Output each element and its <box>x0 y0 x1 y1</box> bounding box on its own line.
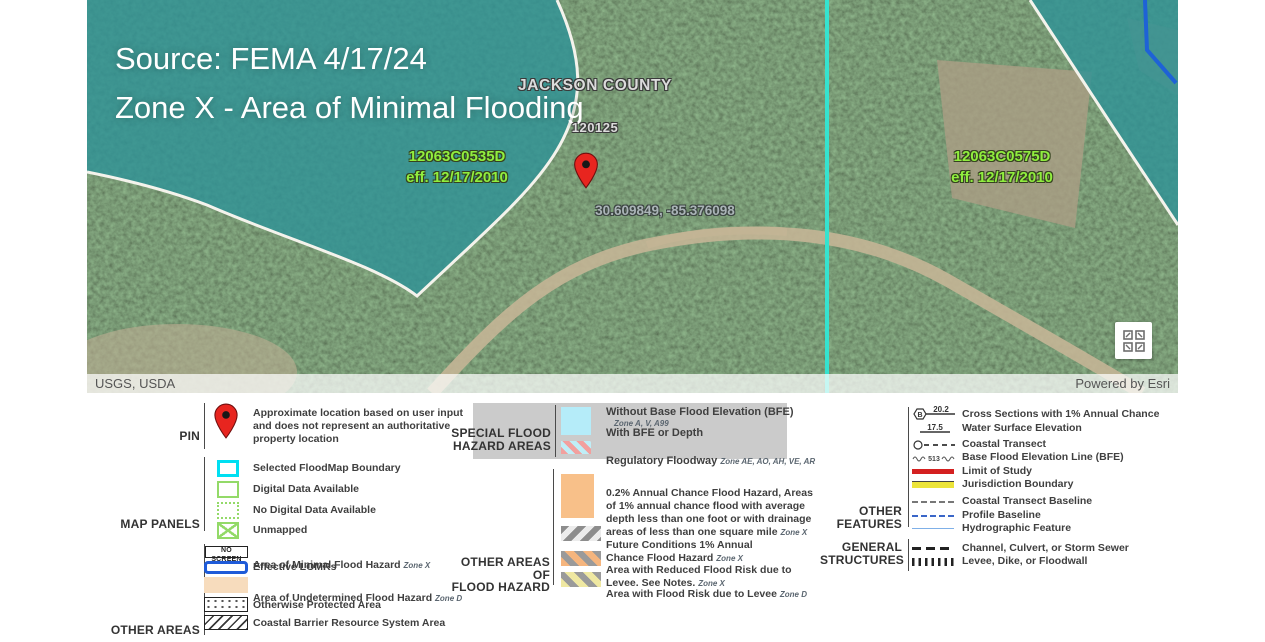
svg-text:513: 513 <box>928 456 940 463</box>
coastal-transect-symbol <box>912 439 956 451</box>
swatch-coastal-barrier <box>204 615 248 630</box>
swatch-undetermined <box>204 577 248 593</box>
cross-section-symbol: B 20.2 <box>912 406 956 422</box>
legend-row: B 20.2 Cross Sections with 1% Annual Cha… <box>912 406 1159 422</box>
jurisdiction-boundary-symbol <box>912 481 956 488</box>
water-surface-elevation-symbol: 17.5 <box>912 422 956 435</box>
legend-section-other-features: OTHER FEATURES <box>820 505 902 530</box>
swatch-no-digital-data <box>217 502 239 519</box>
legend-label: With BFE or Depth <box>606 427 703 440</box>
swatch-future-conditions <box>561 526 601 541</box>
attribution-sources: USGS, USDA <box>95 376 175 391</box>
legend-row: Channel, Culvert, or Storm Sewer <box>912 542 1129 555</box>
swatch-otherwise-protected <box>204 597 248 612</box>
swatch-digital-data <box>217 481 239 498</box>
firm-panel-label-left: 12063C0535D eff. 12/17/2010 <box>362 146 552 188</box>
legend-label: No Digital Data Available <box>253 504 376 517</box>
divider <box>204 457 205 531</box>
pin-coordinates-label: 30.609849, -85.376098 <box>565 203 765 218</box>
legend-section-general-structures: GENERAL STRUCTURES <box>820 541 902 566</box>
legend-row: Jurisdiction Boundary <box>912 478 1073 491</box>
legend-label: Otherwise Protected Area <box>253 599 381 612</box>
legend-row: Hydrographic Feature <box>912 522 1071 535</box>
swatch-flood-risk-levee <box>561 572 601 587</box>
legend-row: Levee, Dike, or Floodwall <box>912 555 1087 568</box>
svg-text:17.5: 17.5 <box>927 423 943 432</box>
legend-label: Regulatory Floodway Zone AE, AO, AH, VE,… <box>606 442 815 468</box>
svg-text:20.2: 20.2 <box>933 406 949 414</box>
legend-row: 17.5 Water Surface Elevation <box>912 422 1082 435</box>
divider <box>204 403 205 449</box>
legend-row: Limit of Study <box>912 465 1032 478</box>
swatch-selected-floodmap-boundary <box>217 460 239 477</box>
flood-map-legend: PIN Approximate location based on user i… <box>0 393 1265 642</box>
legend-label: Selected FloodMap Boundary <box>253 462 401 475</box>
legend-section-sfha: SPECIAL FLOOD HAZARD AREAS <box>440 427 551 452</box>
attribution-esri: Powered by Esri <box>1075 376 1170 391</box>
legend-label: Area with Flood Risk due to Levee Zone D <box>606 575 807 601</box>
hydrographic-feature-symbol <box>912 528 956 530</box>
county-code-label: 120125 <box>485 120 705 135</box>
flood-map-canvas[interactable]: Source: FEMA 4/17/24 Zone X - Area of Mi… <box>87 0 1178 393</box>
coastal-transect-baseline-symbol <box>912 501 956 503</box>
legend-row: Profile Baseline <box>912 509 1041 522</box>
legend-section-pin: PIN <box>100 430 200 443</box>
swatch-sfha-cyan <box>561 407 591 435</box>
legend-label: Coastal Barrier Resource System Area <box>253 617 445 630</box>
legend-label: Unmapped <box>253 524 307 537</box>
channel-culvert-symbol <box>912 547 956 551</box>
svg-text:B: B <box>917 412 922 419</box>
profile-baseline-symbol <box>912 515 956 517</box>
swatch-no-screen: NO SCREEN <box>205 546 248 558</box>
legend-row: 513 Base Flood Elevation Line (BFE) <box>912 451 1124 464</box>
legend-row: Coastal Transect <box>912 438 1046 451</box>
swatch-unmapped <box>217 522 239 539</box>
swatch-02pct-annual-chance <box>561 474 594 518</box>
legend-label: Without Base Flood Elevation (BFE) <box>606 406 794 419</box>
legend-row: Coastal Transect Baseline <box>912 495 1092 508</box>
location-pin[interactable] <box>573 152 599 189</box>
legend-section-oafh: OTHER AREAS OF FLOOD HAZARD <box>450 556 550 594</box>
swatch-reduced-risk-levee <box>561 551 601 566</box>
legend-section-map-panels: MAP PANELS <box>88 518 200 531</box>
divider <box>555 405 556 457</box>
divider <box>908 407 909 527</box>
legend-section-other-areas: OTHER AREAS <box>88 624 200 637</box>
legend-pin-icon <box>213 403 239 439</box>
limit-of-study-symbol <box>912 469 956 474</box>
county-label: JACKSON COUNTY <box>485 77 705 95</box>
map-attribution-bar: USGS, USDA Powered by Esri <box>87 374 1178 393</box>
bfe-line-symbol: 513 <box>912 452 956 464</box>
divider <box>908 539 909 571</box>
legend-pin-description: Approximate location based on user input… <box>253 407 463 446</box>
basemap-widget-button[interactable] <box>1115 322 1152 359</box>
basemap-widget-icon <box>1123 330 1145 352</box>
divider <box>553 469 554 585</box>
legend-label: Effective LOMRs <box>253 561 336 574</box>
legend-label: Digital Data Available <box>253 483 359 496</box>
swatch-effective-lomrs <box>204 561 248 574</box>
levee-dike-floodwall-symbol <box>912 558 956 566</box>
swatch-regulatory-floodway <box>561 441 591 454</box>
firm-panel-label-right: 12063C0575D eff. 12/17/2010 <box>907 146 1097 188</box>
